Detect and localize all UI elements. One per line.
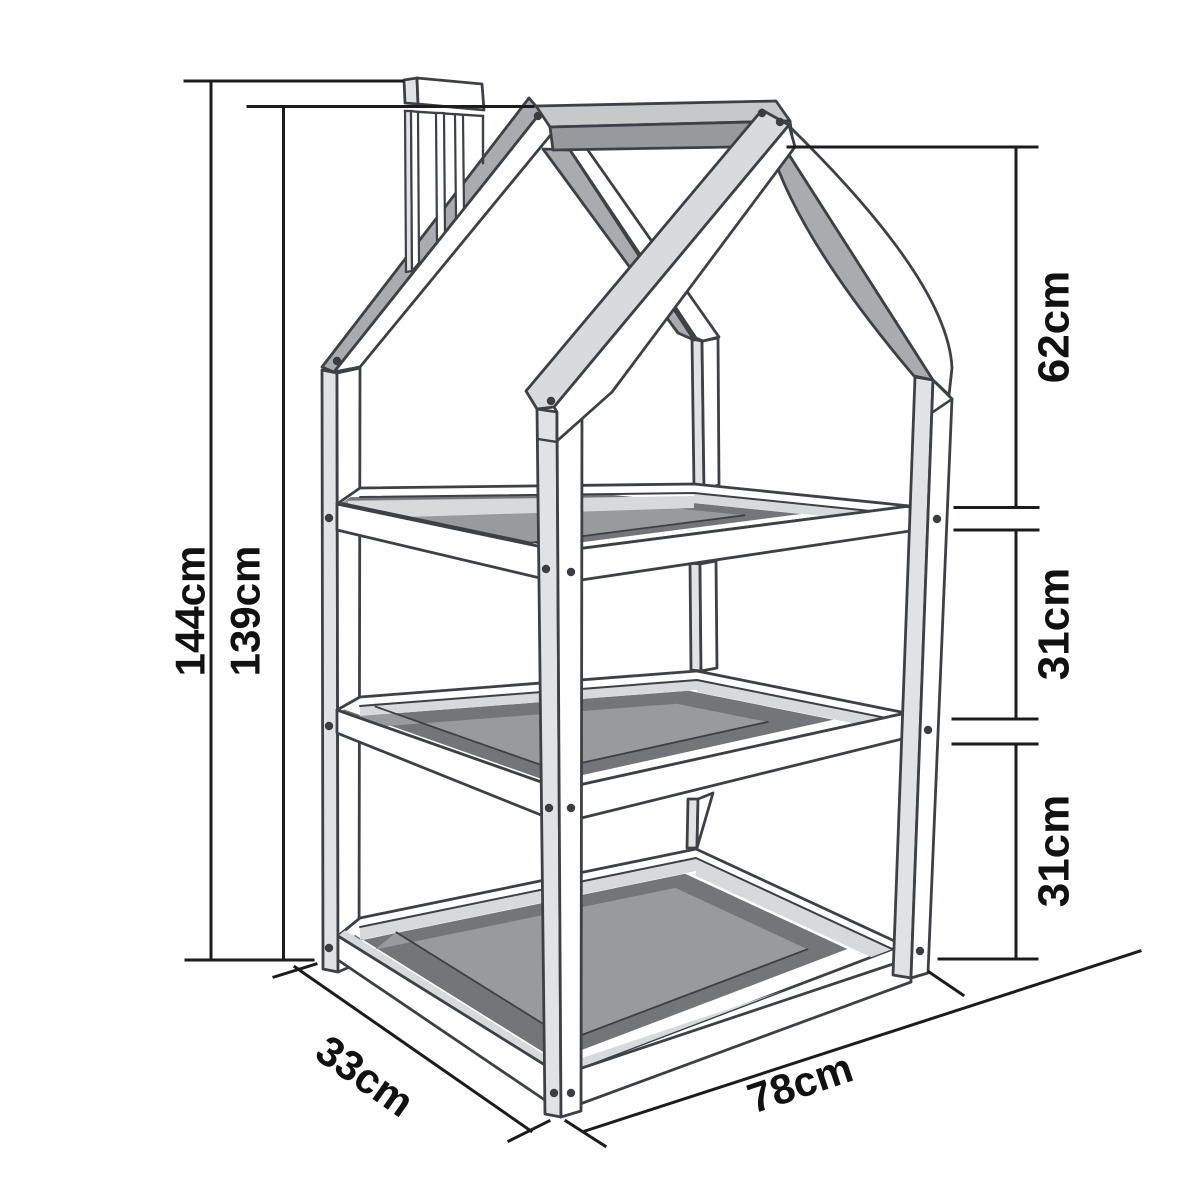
svg-text:31cm: 31cm — [1030, 795, 1079, 908]
svg-text:62cm: 62cm — [1030, 271, 1079, 384]
svg-text:31cm: 31cm — [1030, 568, 1079, 681]
svg-text:144cm: 144cm — [167, 546, 214, 677]
svg-text:139cm: 139cm — [222, 546, 269, 677]
